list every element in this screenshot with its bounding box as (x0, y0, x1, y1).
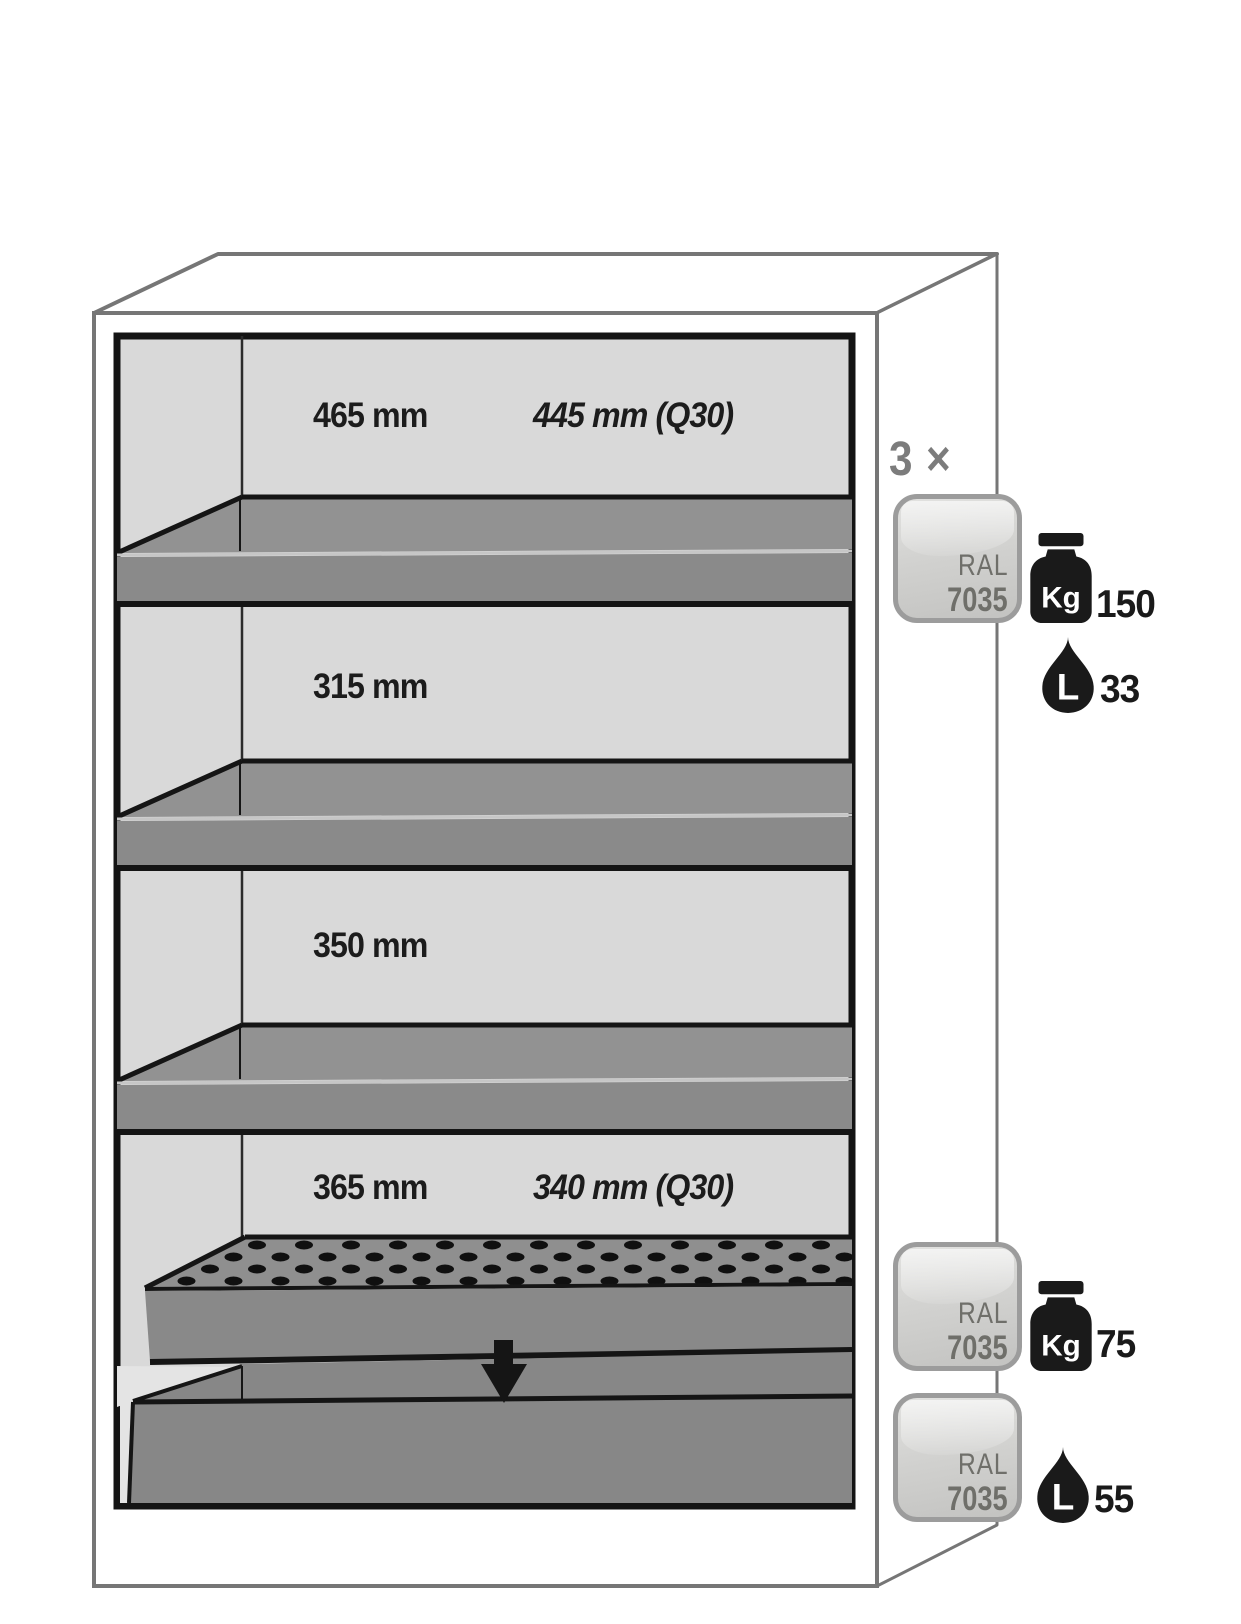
badge-code-text: 7035 (947, 1480, 1008, 1519)
liter-unit-text: L (1052, 1477, 1075, 1518)
badge-ral-text: RAL (958, 1448, 1008, 1482)
shelf-load-value: 150 (1096, 585, 1155, 625)
kg-weight-icon: Kg (1030, 533, 1092, 623)
insert-load-value: 75 (1096, 1325, 1135, 1365)
depth-label: 315 mm (313, 669, 427, 705)
shelf-volume-value: 33 (1100, 670, 1139, 710)
liter-unit-text: L (1057, 667, 1080, 708)
depth-label: 350 mm (313, 928, 427, 964)
liquid-drop-icon: L (1038, 636, 1098, 714)
depth-label-q30: 340 mm (Q30) (533, 1170, 733, 1206)
depth-label: 465 mm (313, 398, 427, 434)
shelf-2 (117, 761, 852, 868)
badge-code-text: 7035 (947, 581, 1008, 620)
badge-code-text: 7035 (947, 1329, 1008, 1368)
shelf-1 (117, 497, 852, 604)
shelf-3 (117, 1025, 852, 1132)
sump-volume-value: 55 (1094, 1480, 1133, 1520)
ral-7035-badge-shelves: RAL 7035 (893, 494, 1022, 623)
badge-ral-text: RAL (958, 549, 1008, 583)
shelf-count-label: 3 × (889, 432, 952, 487)
depth-label-q30: 445 mm (Q30) (533, 398, 733, 434)
kg-unit-text: Kg (1041, 582, 1081, 615)
liquid-drop-icon: L (1033, 1446, 1093, 1524)
badge-ral-text: RAL (958, 1297, 1008, 1331)
cabinet-line-art (0, 0, 1241, 1624)
ral-7035-badge-insert: RAL 7035 (893, 1242, 1022, 1371)
kg-weight-icon: Kg (1030, 1281, 1092, 1371)
collecting-sump (117, 1352, 852, 1503)
depth-label: 365 mm (313, 1170, 427, 1206)
ral-7035-badge-sump: RAL 7035 (893, 1393, 1022, 1522)
kg-unit-text: Kg (1041, 1330, 1081, 1363)
safety-cabinet-diagram: 465 mm 445 mm (Q30) 315 mm 350 mm 365 mm… (0, 0, 1241, 1624)
